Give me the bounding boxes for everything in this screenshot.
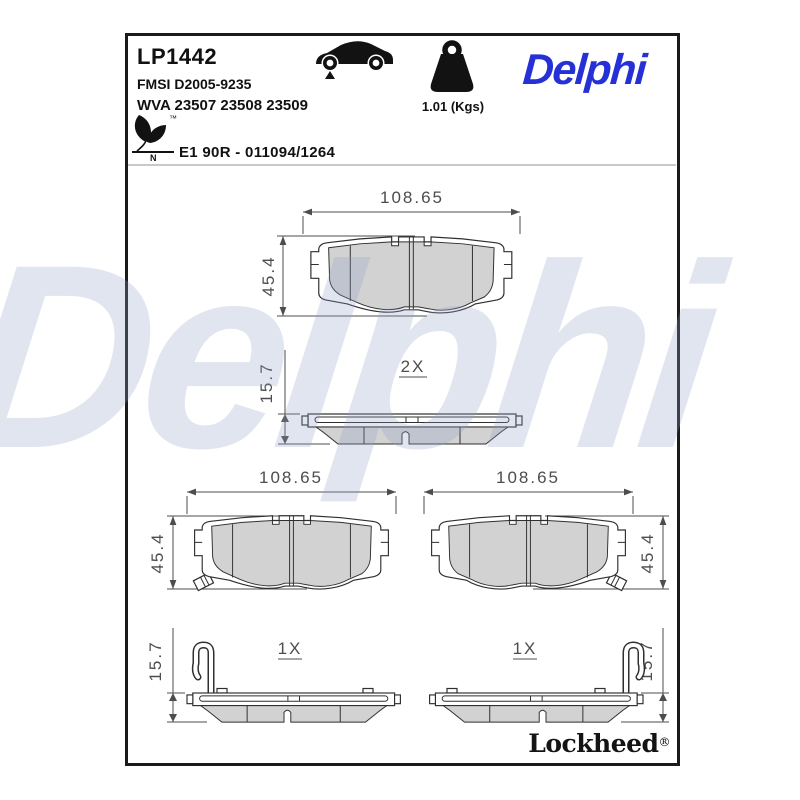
delphi-logo: Delphi xyxy=(521,46,647,95)
pad-top-right-shape xyxy=(430,693,643,722)
eco-leaf-icon: N ™ xyxy=(130,111,180,165)
dim-width-right: 108.65 xyxy=(496,468,560,487)
header-divider xyxy=(128,164,676,166)
arrow-down xyxy=(659,714,667,722)
dim-thickness-left: 15.7 xyxy=(146,640,165,681)
weight-value: 1.01 (Kgs) xyxy=(408,99,498,114)
registered-mark: ® xyxy=(659,735,671,749)
dim-height-left: 45.4 xyxy=(148,532,167,573)
shim-tab xyxy=(447,689,457,694)
lockheed-text: Lockheed xyxy=(528,729,658,758)
wear-clip-left xyxy=(195,645,211,694)
arrow-down xyxy=(169,714,177,722)
datasheet-page: LP1442 FMSI D2005-9235 WVA 23507 23508 2… xyxy=(0,0,800,800)
shim-tab xyxy=(595,689,605,694)
lockheed-logo: Lockheed® xyxy=(528,729,670,758)
fmsi-reference: FMSI D2005-9235 xyxy=(137,76,251,92)
dim-ext-width-right xyxy=(424,496,633,514)
dim-thickness-pair: 15.7 xyxy=(257,362,276,403)
view-front-left: 108.65 45.4 xyxy=(148,468,396,591)
leaf-trademark: ™ xyxy=(169,114,177,123)
dim-height-right: 45.4 xyxy=(638,532,657,573)
dim-ext-width xyxy=(303,216,520,234)
leaf-letter: N xyxy=(150,153,157,163)
weight-body xyxy=(431,54,474,92)
arrow-up xyxy=(659,693,667,701)
arrow-up xyxy=(281,414,289,422)
front-axle-arrow xyxy=(325,71,335,79)
pad-top-pair-shape xyxy=(302,414,522,444)
part-number: LP1442 xyxy=(137,44,217,70)
technical-drawing: 108.65 45.4 2X 15.7 108.65 45.4 xyxy=(125,170,680,765)
arrow-up xyxy=(169,693,177,701)
pad-front-left-shape xyxy=(195,516,389,589)
view-top-right: 1X 15.7 xyxy=(430,628,669,722)
car-front-wheel xyxy=(325,58,335,68)
dim-ext-width-left xyxy=(187,496,396,514)
car-rear-wheel xyxy=(371,58,381,68)
dim-width-left: 108.65 xyxy=(259,468,323,487)
view-front-right: 108.65 45.4 xyxy=(424,468,669,591)
homologation-number: E1 90R - 011094/1264 xyxy=(179,144,335,161)
arrow-down xyxy=(281,436,289,444)
dim-width-front-pair: 108.65 xyxy=(380,188,444,207)
pad-front-right-shape xyxy=(432,516,626,589)
view-top-left: 1X 15.7 xyxy=(146,628,400,722)
shim-tab xyxy=(363,689,373,694)
weight-icon xyxy=(424,40,480,98)
car-front-axle-icon xyxy=(313,38,397,80)
qty-right: 1X xyxy=(513,639,538,658)
wear-clip-right xyxy=(626,645,642,694)
view-top-pair: 2X 15.7 xyxy=(257,350,522,444)
pad-top-left-shape xyxy=(187,693,400,722)
pad-front-pair-shape xyxy=(311,237,512,313)
dim-height-front-pair: 45.4 xyxy=(259,255,278,296)
qty-pair: 2X xyxy=(401,357,426,376)
shim-tab xyxy=(217,689,227,694)
view-front-pair: 108.65 45.4 xyxy=(259,188,520,316)
qty-left: 1X xyxy=(278,639,303,658)
